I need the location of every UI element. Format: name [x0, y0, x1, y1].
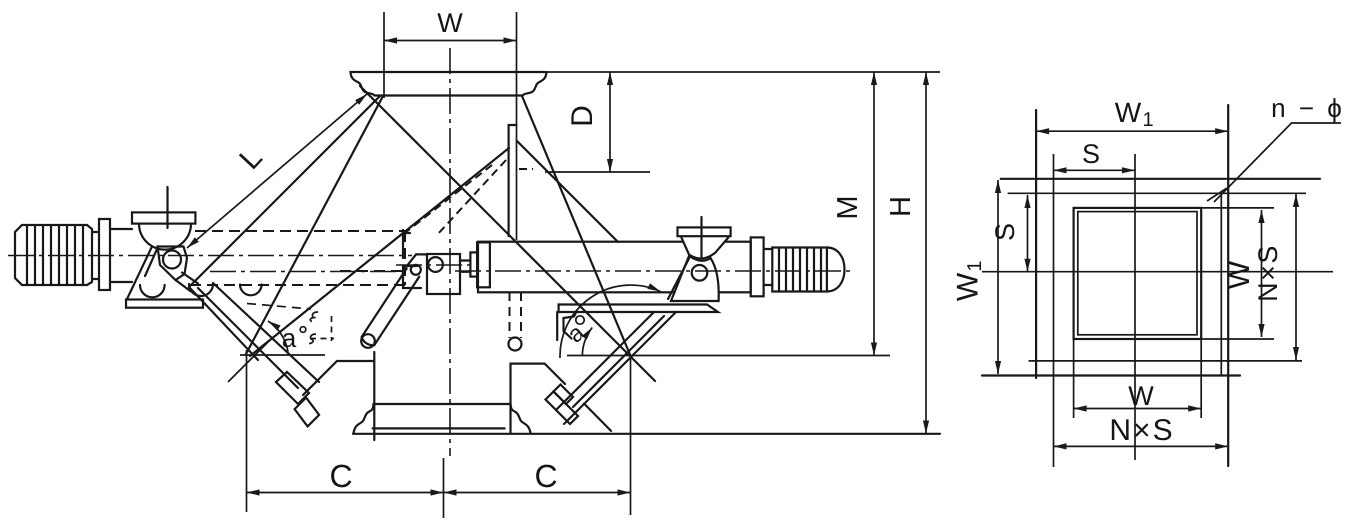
svg-text:D: D [566, 105, 599, 127]
svg-text:C: C [534, 458, 557, 494]
svg-text:n − ϕ: n − ϕ [1271, 93, 1345, 123]
svg-text:W: W [952, 272, 985, 301]
svg-text:N×S: N×S [1253, 244, 1283, 302]
svg-text:C: C [329, 458, 352, 494]
svg-text:W: W [1128, 381, 1154, 411]
svg-text:W: W [1223, 260, 1256, 289]
svg-text:W: W [437, 8, 463, 38]
svg-text:a: a [282, 323, 297, 353]
svg-text:W: W [1115, 97, 1142, 128]
svg-text:M: M [832, 195, 864, 219]
svg-text:S: S [990, 223, 1020, 241]
svg-text:1: 1 [964, 260, 986, 271]
svg-text:S: S [1082, 139, 1100, 169]
svg-text:H: H [885, 196, 917, 217]
svg-text:N×S: N×S [1109, 414, 1174, 447]
svg-text:1: 1 [1142, 109, 1153, 131]
